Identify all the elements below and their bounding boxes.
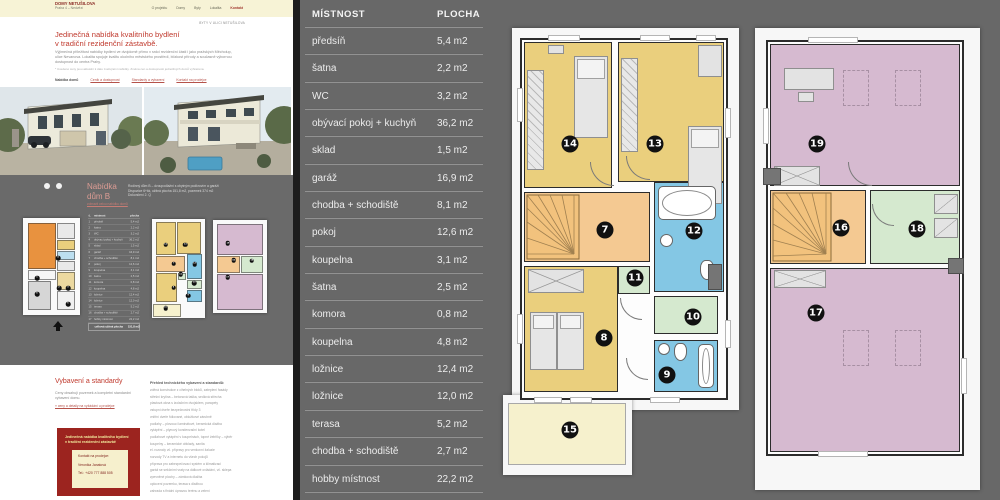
standards-title: Vybavení a standardy xyxy=(55,378,122,385)
offer-address-line: Dokončení 2. Q xyxy=(128,193,228,198)
room-area: 1,5 m2 xyxy=(437,145,468,156)
mini-room-16 xyxy=(217,256,240,273)
room-area: 4,8 m2 xyxy=(437,337,468,348)
house-photos xyxy=(0,87,293,175)
nav-item[interactable]: Domy xyxy=(176,6,185,10)
mini-room-a xyxy=(57,240,75,250)
room-area: 0,8 m2 xyxy=(437,309,468,320)
window xyxy=(961,358,967,394)
page-title-line1: Jedinečná nabídka kvalitního bydlení xyxy=(55,30,180,39)
feature-item: zpevněné plochy – zámková dlažba xyxy=(150,474,268,481)
feature-item: podlahy – plovoucí laminátové, keramická… xyxy=(150,421,268,428)
mini-floorplan-first-floor[interactable]: 141371211810915 xyxy=(152,219,205,318)
room-name: ložnice xyxy=(312,391,343,402)
room-table-rows: předsíň 5,4 m2 šatna 2,2 m2 WC 3,2 m2 ob… xyxy=(300,28,488,500)
room-number-badge: 9 xyxy=(659,367,676,384)
hero-links: Nabídka domůCeník a dostupnostStandardy … xyxy=(55,78,207,82)
table-row: předsíň 5,4 m2 xyxy=(300,28,488,55)
room-area: 22,2 m2 xyxy=(437,474,473,485)
table-row: pokoj 12,6 m2 xyxy=(300,219,488,246)
feature-item: střešní krytina – betonová taška, sedlov… xyxy=(150,394,268,401)
chimney-shaft xyxy=(708,264,722,290)
table-row: garáž 16,9 m2 xyxy=(300,165,488,192)
mini-room-garage xyxy=(28,281,51,310)
room-area: 2,2 m2 xyxy=(437,63,468,74)
wardrobe xyxy=(621,58,638,152)
mini-table-total: celková užitná plocha 151,8 m2 xyxy=(88,324,140,331)
entrance-arrow-icon xyxy=(53,321,63,331)
room-number-badge: 1 xyxy=(35,276,40,281)
room-area: 3,2 m2 xyxy=(437,91,468,102)
column-header-area: PLOCHA xyxy=(437,9,480,20)
mini-floorplan-ground[interactable]: 416235 xyxy=(23,218,80,315)
table-row: chodba + schodiště 2,7 m2 xyxy=(300,438,488,465)
feature-item: zahrada s finální úpravou terénu a zelen… xyxy=(150,488,268,495)
site-header: DOMY NETUŠILOVA Praha 4 – Nedvězí O proj… xyxy=(0,0,293,17)
bed-double-left xyxy=(530,312,557,370)
table-row: koupelna 3,1 m2 xyxy=(300,247,488,274)
mini-room-17 xyxy=(217,274,263,310)
room-number-badge: 3 xyxy=(66,286,71,291)
room-number-badge: 13 xyxy=(647,136,664,153)
window xyxy=(696,35,716,41)
room-name: garáž xyxy=(312,173,337,184)
room-number-badge: 14 xyxy=(562,136,579,153)
room-name: hobby místnost xyxy=(312,474,380,485)
slider-dots xyxy=(44,183,62,189)
table-row: terasa 5,2 m2 xyxy=(300,411,488,438)
window xyxy=(534,397,562,403)
room-number-badge: 2 xyxy=(57,286,62,291)
nav-item[interactable]: Byty xyxy=(194,6,201,10)
room-number-badge: 19 xyxy=(226,241,231,246)
room-number-badge: 7 xyxy=(171,261,176,266)
room-number-badge: 19 xyxy=(809,136,826,153)
room-number-badge: 9 xyxy=(186,294,191,299)
mini-room-13 xyxy=(177,222,201,254)
standards-paragraph: Ceny obsahují pozemek a kompletní standa… xyxy=(55,391,143,401)
room-number-badge: 15 xyxy=(163,306,168,311)
feature-item: el. rozvody vč. přípravy pro venkovní ža… xyxy=(150,447,268,454)
table-row: ložnice 12,0 m2 xyxy=(300,383,488,410)
breadcrumb: BYTY V ULICI NETUŠILOVA xyxy=(199,21,245,25)
hero-link[interactable]: Ceník a dostupnost xyxy=(90,78,119,82)
chair xyxy=(798,92,814,102)
page-title: Jedinečná nabídka kvalitního bydlení v t… xyxy=(55,30,180,48)
site-logo-subtitle: Praha 4 – Nedvězí xyxy=(55,7,95,11)
room-name: předsíň xyxy=(312,36,345,47)
desk xyxy=(784,68,834,90)
room-area: 12,0 m2 xyxy=(437,391,473,402)
chimney-shaft xyxy=(948,258,964,274)
column-header-room: MÍSTNOST xyxy=(312,9,365,20)
table-row: šatna 2,5 m2 xyxy=(300,274,488,301)
skylight xyxy=(895,70,921,106)
offer-title-line2: dům B xyxy=(87,192,117,202)
room-number-badge: 18 xyxy=(909,221,926,238)
table-row: chodba + schodiště 8,1 m2 xyxy=(300,192,488,219)
nav-item[interactable]: Kontakt xyxy=(230,6,243,10)
feature-item: zděná konstrukce z cihelných bloků, zate… xyxy=(150,387,268,394)
skylight xyxy=(843,330,869,366)
room-name: koupelna xyxy=(312,255,353,266)
website-screenshot: DOMY NETUŠILOVA Praha 4 – Nedvězí O proj… xyxy=(0,0,293,500)
feature-item: podlahové vytápění v koupelnách, topné ž… xyxy=(150,434,268,441)
wardrobe xyxy=(528,269,584,293)
washbasin xyxy=(660,234,673,247)
terrace-door xyxy=(570,397,592,403)
room-area: 5,2 m2 xyxy=(437,419,468,430)
room-number-badge: 15 xyxy=(562,422,579,439)
house-photo-right[interactable] xyxy=(144,87,291,175)
offer-link[interactable]: zobrazit celou nabídku domů xyxy=(87,202,128,206)
cabinet xyxy=(934,218,958,238)
staircase xyxy=(772,192,832,262)
plan-attic[interactable]: 19161817 xyxy=(748,28,988,498)
feature-item: příprava pro zabezpečovací systém a klim… xyxy=(150,461,268,468)
room-area: 5,4 m2 xyxy=(437,36,468,47)
feature-item: plastová okna s izolačním dvojsklem, par… xyxy=(150,400,268,407)
mini-floorplan-attic[interactable]: 19161817 xyxy=(213,220,267,313)
standards-link[interactable]: » ceny a detaily na vyžádání u prodejce xyxy=(55,404,115,408)
mini-room-table: č. místnost plocha 1 předsíň 5,4 m2 2 ša… xyxy=(88,213,140,350)
room-number-badge: 13 xyxy=(183,242,188,247)
room-number-badge: 11 xyxy=(178,272,183,277)
feature-item: vstupní dveře bezpečnostní třídy 3 xyxy=(150,407,268,414)
window xyxy=(650,397,680,403)
table-row: sklad 1,5 m2 xyxy=(300,137,488,164)
room-area: 12,6 m2 xyxy=(437,227,473,238)
table-row: koupelna 4,8 m2 xyxy=(300,329,488,356)
hero-link[interactable]: Kontakt na prodejce xyxy=(176,78,206,82)
room-number-badge: 18 xyxy=(250,258,255,263)
nav-item[interactable]: Lokalita xyxy=(210,6,222,10)
staircase xyxy=(526,194,580,260)
skylight xyxy=(895,330,921,366)
feature-item: vytápění – plynový kondenzační kotel xyxy=(150,427,268,434)
mini-room-hall xyxy=(28,270,56,280)
hero-paragraph: Výjimečná příležitost nabídky bydlení ve… xyxy=(55,50,233,65)
table-row: hobby místnost 22,2 m2 xyxy=(300,466,488,493)
skylight xyxy=(843,70,869,106)
shelf xyxy=(548,45,564,54)
standards-section: Vybavení a standardy Ceny obsahují pozem… xyxy=(0,365,293,500)
room-name: pokoj xyxy=(312,227,336,238)
contact-label: Kontakt na prodejce: xyxy=(78,454,128,459)
room-number-badge: 12 xyxy=(686,223,703,240)
room-number-badge: 6 xyxy=(35,292,40,297)
screenshot-root: DOMY NETUŠILOVA Praha 4 – Nedvězí O proj… xyxy=(0,0,1000,500)
chimney-shaft xyxy=(763,168,781,185)
room-name: chodba + schodiště xyxy=(312,446,398,457)
hero-footnote: * Uvedené ceny jsou aktuální k datu zveř… xyxy=(55,67,225,71)
room-area: 16,9 m2 xyxy=(437,173,473,184)
room-name: WC xyxy=(312,91,329,102)
feature-item: koupelny – keramické obklady, sanita xyxy=(150,441,268,448)
plan-first-floor[interactable]: 141371211810915 xyxy=(500,28,740,475)
window xyxy=(763,108,769,144)
storage-hatch xyxy=(774,270,826,288)
room-area: 12,4 m2 xyxy=(437,364,473,375)
room-number-badge: 16 xyxy=(833,220,850,237)
room-area: 3,1 m2 xyxy=(437,255,468,266)
feature-item: vnitřní dveře fóliované, obložkové zárub… xyxy=(150,414,268,421)
window xyxy=(517,314,523,344)
mini-room-e xyxy=(57,291,75,310)
feature-item: oplocení pozemku, terasa s dlažbou xyxy=(150,481,268,488)
slider-dot-active[interactable] xyxy=(44,183,50,189)
room-name: šatna xyxy=(312,282,336,293)
cabinet xyxy=(934,194,958,214)
contact-phone[interactable]: Tel.: +420 777 888 505 xyxy=(78,471,128,476)
feature-item: rozvody TV a internetu do všech pokojů xyxy=(150,454,268,461)
page-title-line2: v tradiční rezidenční zástavbě. xyxy=(55,39,180,48)
window xyxy=(818,451,868,457)
table-row: WC 3,2 m2 xyxy=(300,83,488,110)
toilet xyxy=(674,343,687,361)
feature-item: garáž se sekčními vraty na dálkové ovlád… xyxy=(150,467,268,474)
mini-table-rows: 1 předsíň 5,4 m2 2 šatna 2,2 m2 3 WC 3,2… xyxy=(88,219,140,323)
room-number-badge: 12 xyxy=(192,262,197,267)
site-logo[interactable]: DOMY NETUŠILOVA Praha 4 – Nedvězí xyxy=(55,2,95,10)
room-number-badge: 17 xyxy=(808,305,825,322)
room-number-badge: 7 xyxy=(597,222,614,239)
table-row: šatna 2,2 m2 xyxy=(300,55,488,82)
mini-room-12 xyxy=(187,254,202,279)
room-name: chodba + schodiště xyxy=(312,200,398,211)
offer-title: Nabídka dům B xyxy=(87,182,117,201)
mini-room-19 xyxy=(217,224,263,255)
room-name: obývací pokoj + kuchyň xyxy=(312,118,416,129)
room-number-badge: 11 xyxy=(627,270,644,287)
features-list: zděná konstrukce z cihelných bloků, zate… xyxy=(150,387,268,494)
offer-address-line: Rodinný dům B – dvoupodlažní s obytným p… xyxy=(128,184,228,189)
bathtub xyxy=(698,344,714,388)
desk xyxy=(698,45,722,77)
mini-room-living xyxy=(28,223,56,269)
room-area: 8,1 m2 xyxy=(437,200,468,211)
room-number-badge: 16 xyxy=(231,258,236,263)
room-number-badge: 10 xyxy=(685,309,702,326)
room-number-badge: 8 xyxy=(596,330,613,347)
room-name: šatna xyxy=(312,63,336,74)
slider-dot[interactable] xyxy=(56,183,62,189)
mini-room-c xyxy=(57,261,75,271)
room-name: komora xyxy=(312,309,345,320)
window xyxy=(517,88,523,122)
table-row: ložnice 12,4 m2 xyxy=(300,356,488,383)
room-name: sklad xyxy=(312,145,335,156)
room-name: koupelna xyxy=(312,337,353,348)
promo-text: Jedinečná nabídka kvalitního bydlení v t… xyxy=(65,435,129,445)
room-area: 2,7 m2 xyxy=(437,446,468,457)
room-name: ložnice xyxy=(312,364,343,375)
window xyxy=(725,108,731,138)
mini-table-row: 17 hobby místnost 22,2 m2 xyxy=(88,317,140,323)
offer-section: Nabídka dům B zobrazit celou nabídku dom… xyxy=(0,175,293,365)
window xyxy=(808,37,858,43)
promo-box: Jedinečná nabídka kvalitního bydlení v t… xyxy=(57,428,140,496)
window xyxy=(640,35,670,41)
window xyxy=(548,35,580,41)
room-number-badge: 8 xyxy=(171,285,176,290)
features-heading: Přehled technického vybavení a standardů… xyxy=(150,381,268,385)
hero-link[interactable]: Standardy a vybavení xyxy=(132,78,165,82)
bed-double-right xyxy=(557,312,584,370)
mini-room-entry xyxy=(57,223,75,239)
room-table-header: MÍSTNOST PLOCHA xyxy=(300,0,488,28)
top-nav: O projektuDomyBytyLokalitaKontakt xyxy=(152,6,243,10)
room-number-badge: 4 xyxy=(56,256,61,261)
wardrobe xyxy=(527,70,544,170)
house-photo-left[interactable] xyxy=(0,87,142,175)
room-table-panel: MÍSTNOST PLOCHA předsíň 5,4 m2 šatna 2,2… xyxy=(300,0,488,500)
offer-address: Rodinný dům B – dvoupodlažní s obytným p… xyxy=(128,184,228,198)
washbasin xyxy=(658,343,670,355)
features-column: Přehled technického vybavení a standardů… xyxy=(150,381,268,494)
room-area: 36,2 m2 xyxy=(437,118,473,129)
contact-name: Veronika Janatová xyxy=(78,463,128,468)
table-row-partial xyxy=(300,493,488,500)
contact-card: Kontakt na prodejce: Veronika Janatová T… xyxy=(72,450,128,488)
room-number-badge: 14 xyxy=(163,242,168,247)
room-number-badge: 10 xyxy=(192,281,197,286)
mini-room-14 xyxy=(156,222,176,255)
nav-item[interactable]: O projektu xyxy=(152,6,168,10)
bathtub xyxy=(658,186,716,220)
room-name: terasa xyxy=(312,419,340,430)
table-row: komora 0,8 m2 xyxy=(300,301,488,328)
room-area: 2,5 m2 xyxy=(437,282,468,293)
hero-link[interactable]: Nabídka domů xyxy=(55,78,78,82)
table-row: obývací pokoj + kuchyň 36,2 m2 xyxy=(300,110,488,137)
bed-single xyxy=(574,56,608,138)
panel-divider xyxy=(293,0,300,500)
offer-title-line1: Nabídka xyxy=(87,182,117,192)
window xyxy=(725,320,731,348)
room-number-badge: 5 xyxy=(66,302,71,307)
room-number-badge: 17 xyxy=(225,275,230,280)
